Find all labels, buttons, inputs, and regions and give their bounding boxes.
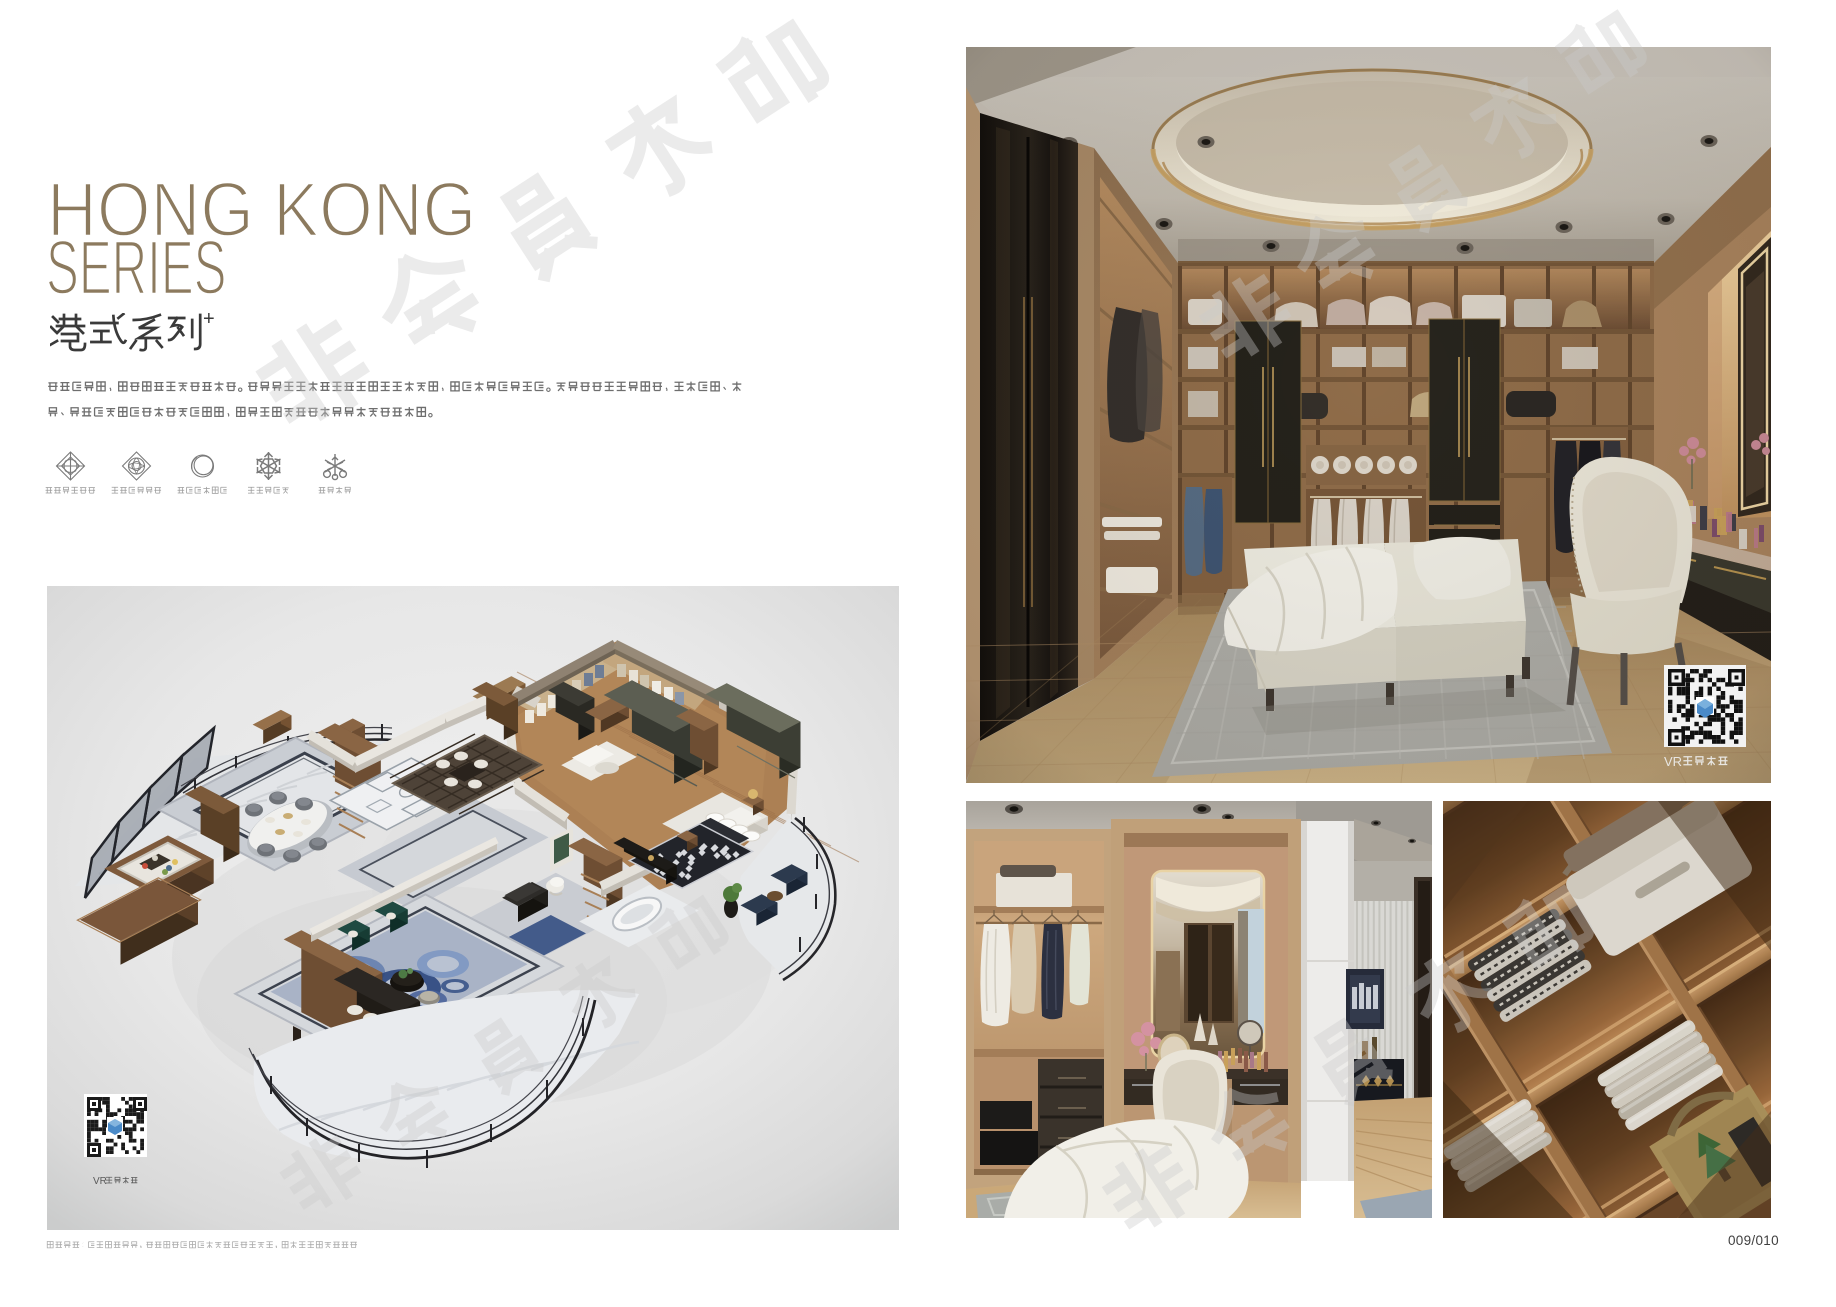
svg-text:VR: VR: [1664, 754, 1682, 769]
svg-text:VR: VR: [93, 1176, 107, 1187]
